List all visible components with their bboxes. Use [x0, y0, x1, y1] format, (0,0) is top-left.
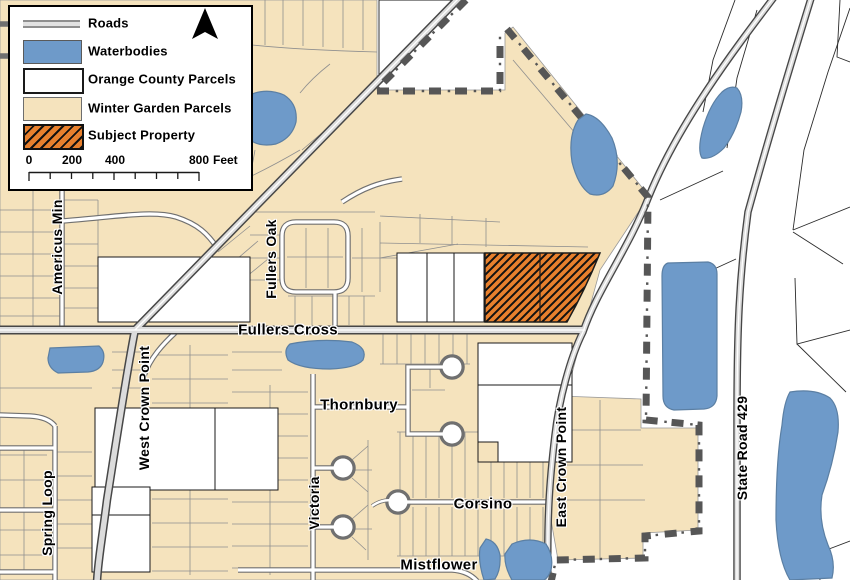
street-label-mistflower: Mistflower — [400, 557, 477, 574]
street-label-state-road-429: State Road 429 — [734, 396, 750, 501]
street-label-spring-loop: Spring Loop — [39, 470, 55, 556]
legend-label-orange-county-parcels: Orange County Parcels — [88, 72, 236, 87]
legend-label-subject-property: Subject Property — [88, 128, 195, 143]
scale-bar-ticks — [10, 171, 230, 183]
legend-symbol-orange-county-parcels — [23, 68, 84, 94]
scale-tick-400: 400 — [105, 153, 125, 167]
scale-tick-200: 200 — [62, 153, 82, 167]
legend-panel: Roads Waterbodies Orange County Parcels … — [8, 5, 253, 191]
street-label-corsino: Corsino — [454, 496, 513, 513]
legend-symbol-winter-garden-parcels — [23, 97, 82, 121]
street-label-americus-min: Americus Min — [49, 199, 65, 294]
street-label-east-crown-point: East Crown Point — [553, 407, 569, 528]
street-label-victoria: Victoria — [306, 476, 322, 530]
scale-tick-800: 800 — [189, 153, 209, 167]
street-label-fullers-cross: Fullers Cross — [238, 322, 338, 339]
scale-tick-0: 0 — [26, 153, 33, 167]
street-label-west-crown-point: West Crown Point — [136, 346, 152, 470]
legend-symbol-roads — [23, 20, 80, 28]
map-canvas: Fullers Cross Fullers Oak Americus Min W… — [0, 0, 850, 580]
legend-symbol-waterbodies — [23, 40, 82, 64]
scale-unit-label: Feet — [213, 153, 238, 167]
legend-symbol-subject-property — [23, 124, 84, 150]
street-label-fullers-oak: Fullers Oak — [263, 219, 279, 299]
north-arrow-icon — [190, 7, 220, 41]
legend-label-roads: Roads — [88, 16, 129, 31]
legend-label-winter-garden-parcels: Winter Garden Parcels — [88, 101, 232, 116]
legend-label-waterbodies: Waterbodies — [88, 44, 168, 59]
street-label-thornbury: Thornbury — [320, 397, 398, 414]
